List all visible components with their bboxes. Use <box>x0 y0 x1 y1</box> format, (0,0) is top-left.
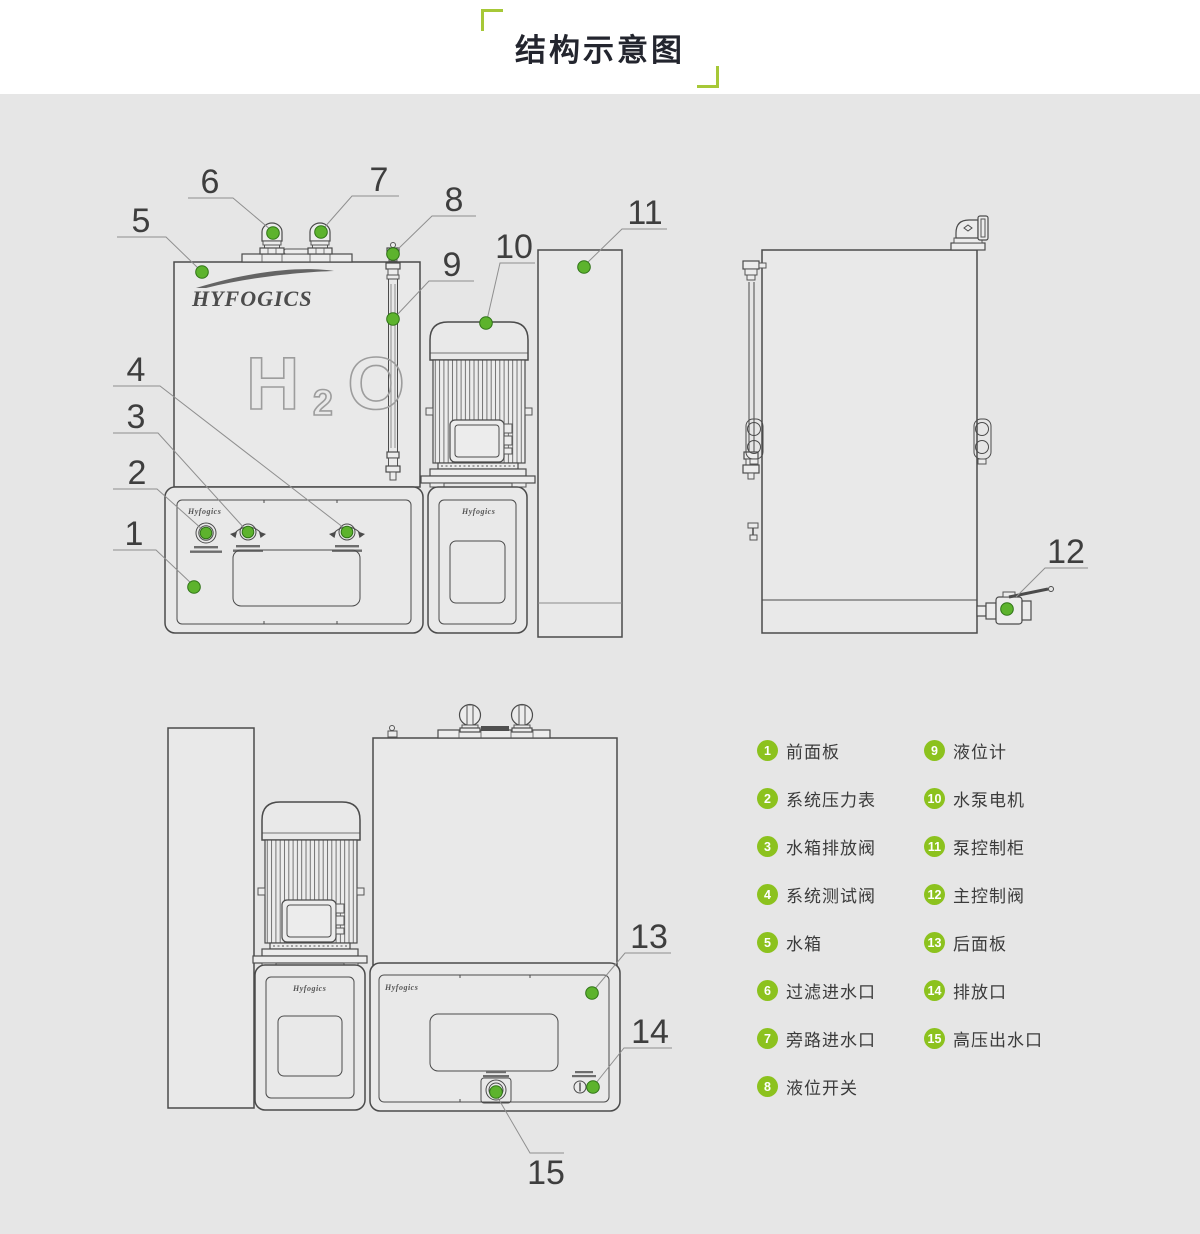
svg-text:13: 13 <box>630 918 668 956</box>
front-panel: Hyfogics <box>165 487 423 633</box>
legend-badge-14: 14 <box>924 980 945 1001</box>
legend-column-2: 9 液位计 10 水泵电机 11 泵控制柜 12 主控制阀 13 后面板 14 … <box>924 740 1043 1049</box>
legend-label-11: 泵控制柜 <box>953 834 1025 859</box>
legend-label-14: 排放口 <box>953 978 1007 1003</box>
legend-label-9: 液位计 <box>953 738 1007 763</box>
svg-text:15: 15 <box>527 1154 565 1192</box>
legend-label-8: 液位开关 <box>786 1074 858 1099</box>
svg-text:14: 14 <box>631 1013 669 1051</box>
legend-label-12: 主控制阀 <box>953 882 1025 907</box>
svg-text:6: 6 <box>201 163 220 201</box>
legend-item-10: 10 水泵电机 <box>924 788 1043 809</box>
legend-badge-15: 15 <box>924 1028 945 1049</box>
rear-inlet-port-left <box>460 705 481 733</box>
page: { "title": "结构示意图", "brand": { "logo": "… <box>0 0 1200 1234</box>
svg-text:8: 8 <box>445 181 464 219</box>
pump-base-panel-front: Hyfogics <box>428 487 527 633</box>
callout-8: 8 <box>387 181 476 260</box>
legend-badge-5: 5 <box>757 932 778 953</box>
pump-control-cabinet-front <box>538 250 622 637</box>
legend-item-12: 12 主控制阀 <box>924 884 1043 905</box>
legend-badge-2: 2 <box>757 788 778 809</box>
legend-badge-12: 12 <box>924 884 945 905</box>
pump-motor-front <box>421 322 535 487</box>
pump-panel-rear-logo: Hyfogics <box>292 984 326 993</box>
rear-view: Hyfogics Hyfogics <box>168 705 620 1112</box>
water-tank-rear <box>373 705 617 966</box>
legend-item-4: 4 系统测试阀 <box>757 884 876 905</box>
legend-badge-13: 13 <box>924 932 945 953</box>
legend-badge-4: 4 <box>757 884 778 905</box>
front-panel-logo: Hyfogics <box>187 507 221 516</box>
legend-label-4: 系统测试阀 <box>786 882 876 907</box>
legend-badge-6: 6 <box>757 980 778 1001</box>
legend-item-8: 8 液位开关 <box>757 1076 876 1097</box>
svg-text:HYFOGICS: HYFOGICS <box>191 286 312 311</box>
legend-label-2: 系统压力表 <box>786 786 876 811</box>
legend-badge-10: 10 <box>924 788 945 809</box>
pump-base-panel-rear: Hyfogics <box>255 965 365 1110</box>
legend-item-2: 2 系统压力表 <box>757 788 876 809</box>
legend-badge-1: 1 <box>757 740 778 761</box>
svg-text:3: 3 <box>127 398 146 436</box>
legend-item-7: 7 旁路进水口 <box>757 1028 876 1049</box>
legend-label-1: 前面板 <box>786 738 840 763</box>
top-elbow-fitting <box>951 216 988 250</box>
legend-item-14: 14 排放口 <box>924 980 1043 1001</box>
svg-text:9: 9 <box>443 246 462 284</box>
pump-panel-logo: Hyfogics <box>461 507 495 516</box>
legend-item-3: 3 水箱排放阀 <box>757 836 876 857</box>
legend-badge-3: 3 <box>757 836 778 857</box>
front-view: HYFOGICS H 2 O Hyfogics <box>165 223 622 637</box>
legend-label-13: 后面板 <box>953 930 1007 955</box>
legend-item-15: 15 高压出水口 <box>924 1028 1043 1049</box>
legend-item-6: 6 过滤进水口 <box>757 980 876 1001</box>
rear-inlet-port-right <box>512 705 533 733</box>
main-control-valve <box>977 587 1054 625</box>
side-drain-valve <box>748 523 758 540</box>
pump-control-cabinet-rear <box>168 728 254 1108</box>
legend-label-5: 水箱 <box>786 930 822 955</box>
svg-text:4: 4 <box>127 351 146 389</box>
legend-item-1: 1 前面板 <box>757 740 876 761</box>
cabinet-side-body <box>762 250 977 633</box>
legend-badge-11: 11 <box>924 836 945 857</box>
legend-item-5: 5 水箱 <box>757 932 876 953</box>
legend-item-9: 9 液位计 <box>924 740 1043 761</box>
svg-text:2: 2 <box>128 454 147 492</box>
legend-badge-7: 7 <box>757 1028 778 1049</box>
legend-label-3: 水箱排放阀 <box>786 834 876 859</box>
legend-item-13: 13 后面板 <box>924 932 1043 953</box>
legend-label-7: 旁路进水口 <box>786 1026 876 1051</box>
legend-column-1: 1 前面板 2 系统压力表 3 水箱排放阀 4 系统测试阀 5 水箱 6 过滤进… <box>757 740 876 1097</box>
side-view <box>743 216 1054 633</box>
svg-text:11: 11 <box>627 194 662 232</box>
callout-10: 10 <box>480 228 535 329</box>
legend-badge-8: 8 <box>757 1076 778 1097</box>
rear-level-switch <box>388 726 397 738</box>
svg-text:7: 7 <box>370 161 389 199</box>
svg-text:10: 10 <box>495 228 533 266</box>
water-tank-front: HYFOGICS H 2 O <box>174 223 420 487</box>
pump-motor-rear <box>253 802 367 967</box>
svg-text:1: 1 <box>125 515 144 553</box>
legend-item-11: 11 泵控制柜 <box>924 836 1043 857</box>
svg-text:5: 5 <box>132 202 151 240</box>
legend-badge-9: 9 <box>924 740 945 761</box>
legend-label-6: 过滤进水口 <box>786 978 876 1003</box>
legend-label-15: 高压出水口 <box>953 1026 1043 1051</box>
svg-text:12: 12 <box>1047 533 1085 571</box>
legend-label-10: 水泵电机 <box>953 786 1025 811</box>
rear-panel-logo: Hyfogics <box>384 983 418 992</box>
